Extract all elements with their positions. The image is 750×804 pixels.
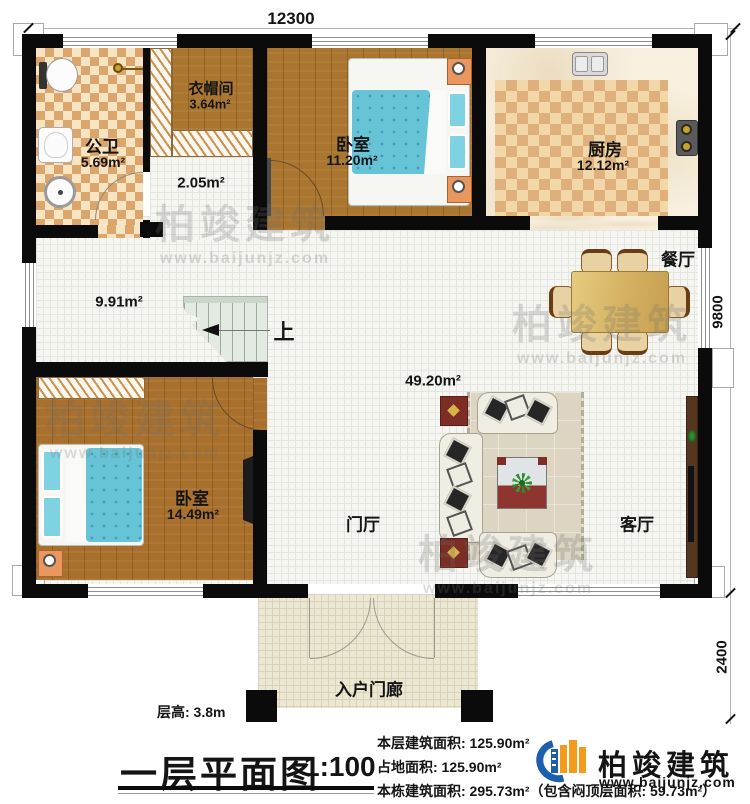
washbasin-drain: [58, 190, 63, 195]
closet-hatch-vertical: [150, 48, 172, 157]
top-dimension-label: 12300: [267, 9, 314, 29]
bed-pillow: [42, 450, 62, 492]
wardrobe-hatch-cloakroom: [172, 130, 253, 157]
towel-bar: [121, 68, 145, 70]
porch-depth-label: 2400: [714, 640, 731, 673]
title-underline-thin: [118, 793, 374, 794]
logo-building-bar: [569, 740, 577, 773]
wall-segment: [143, 48, 150, 172]
floor-drain: [113, 63, 123, 73]
bed-pillow: [42, 496, 62, 538]
logo-building-bar: [560, 745, 567, 773]
floor-area-note: 本层建筑面积: 125.90m²: [377, 733, 529, 753]
coffee-table-corner: [497, 457, 506, 465]
nightstand-lamp-icon: [452, 62, 465, 75]
stairs-arrow-head: [202, 324, 219, 336]
window: [63, 34, 177, 48]
tv-living: [688, 466, 694, 542]
plant-small-icon: [688, 430, 696, 442]
window: [698, 248, 712, 348]
wall-segment: [36, 225, 98, 238]
wall-segment: [36, 362, 268, 377]
bathroom-door-gap-floor: [98, 225, 140, 238]
room-area-bedroom1: 11.20m²: [326, 152, 377, 168]
room-area-bathroom: 5.69m²: [81, 154, 125, 170]
kitchen-rug: [495, 80, 668, 216]
wall-segment: [325, 216, 472, 230]
room-label-foyer: 门厅: [346, 511, 380, 536]
room-area-bedroom2: 14.49m²: [167, 506, 219, 522]
wall-segment: [253, 430, 267, 584]
title-underline: [118, 786, 374, 790]
dining-table: [571, 271, 669, 333]
room-label-dining: 餐厅: [661, 246, 695, 271]
floor-plan-page: { "plan": { "dimensions": { "top": "1230…: [0, 0, 750, 804]
room-area-corridor: 9.91m²: [95, 294, 143, 311]
wardrobe-hatch-bedroom2: [38, 377, 145, 399]
wall-segment: [658, 216, 712, 230]
coffee-table-corner: [538, 457, 547, 465]
company-logo: [536, 734, 594, 792]
porch-column: [246, 690, 277, 722]
nightstand-lamp-icon: [452, 180, 465, 193]
floor-height-note: 层高: 3.8m: [157, 702, 225, 722]
stairs-up-label: 上: [274, 316, 295, 346]
kitchen-sink-basin: [591, 56, 604, 72]
window: [22, 263, 36, 327]
nightstand-lamp-icon: [43, 554, 56, 567]
dimension-box: [712, 348, 734, 388]
wall-segment: [140, 222, 163, 237]
tv-bedroom2: [243, 456, 253, 524]
logo-building-bar: [551, 749, 558, 773]
bed-pillow: [448, 134, 467, 170]
room-area-cloakroom: 3.64m²: [189, 97, 230, 112]
plan-scale: 1:100: [304, 751, 376, 783]
company-website: www.baijunjz.com: [599, 774, 736, 790]
building-area-label: 本栋建筑面积: 295.73m²: [377, 783, 529, 799]
wall-segment: [472, 216, 530, 230]
right-dimension-label: 9800: [710, 295, 727, 328]
window: [88, 584, 203, 598]
room-area-hallway: 2.05m²: [177, 175, 225, 192]
hallway-floor: [150, 157, 253, 240]
porch-column: [461, 690, 493, 722]
logo-building-bar: [579, 747, 586, 773]
plant-icon: [512, 473, 532, 493]
bed-mattress: [86, 448, 142, 542]
room-label-cloakroom: 衣帽间: [188, 78, 233, 99]
stairs-arrow-line: [218, 330, 270, 331]
land-area-note: 占地面积: 125.90m²: [377, 757, 501, 777]
wall-segment: [253, 48, 267, 230]
entry-door-leaf: [434, 598, 435, 658]
kitchen-opening-floor: [530, 216, 658, 230]
room-label-living: 客厅: [620, 511, 654, 536]
top-dimension-line: [28, 28, 738, 29]
window: [535, 34, 652, 48]
window: [312, 34, 428, 48]
window: [518, 584, 660, 598]
bed-pillow: [448, 92, 467, 128]
vanity-basin-line: [44, 132, 68, 158]
toilet-bowl: [46, 58, 78, 92]
stove-burner: [681, 141, 692, 152]
wall-segment: [472, 48, 486, 230]
room-area-living-zone: 49.20m²: [405, 373, 461, 390]
room-area-kitchen: 12.12m²: [577, 157, 629, 173]
room-label-porch: 入户门廊: [335, 676, 403, 701]
kitchen-sink-basin: [575, 56, 588, 72]
stove-burner: [681, 124, 692, 135]
bedroom1-door-gap-floor: [267, 216, 325, 230]
